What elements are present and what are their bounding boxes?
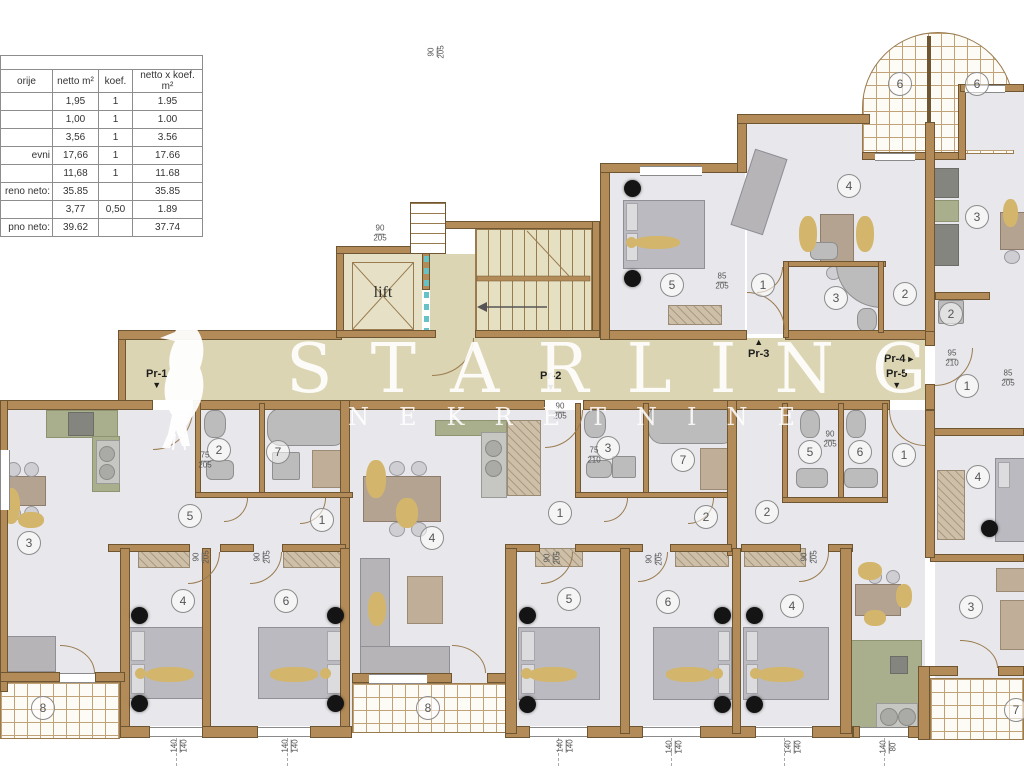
table-cell: netto m²	[53, 70, 99, 93]
wall	[840, 548, 852, 734]
balcony-bottom-left	[0, 682, 120, 739]
dimension-value: 205	[203, 550, 212, 563]
table-cell	[1, 111, 53, 129]
window	[640, 166, 702, 176]
stove-burner	[99, 446, 115, 462]
wall	[930, 428, 1024, 436]
wall	[930, 554, 1024, 562]
person-figure	[858, 562, 882, 580]
dimension-value: 205	[373, 235, 386, 244]
wall	[998, 666, 1024, 676]
person-figure	[1003, 199, 1018, 227]
wall	[195, 492, 353, 498]
lamp-dot	[981, 520, 998, 537]
room-number-badge: 2	[939, 302, 963, 326]
room-number-badge: 4	[966, 465, 990, 489]
table-cell: 1.89	[133, 201, 203, 219]
dimension-label: 85205	[1001, 370, 1014, 389]
kitchen-sink	[68, 412, 94, 436]
wall	[259, 403, 265, 498]
area-table: orijenetto m²koef.netto x koef. m²1,9511…	[0, 55, 203, 237]
dimension-value: 140	[292, 739, 301, 752]
wall	[575, 544, 643, 552]
lamp-dot	[131, 695, 148, 712]
table-cell: 1	[99, 165, 133, 183]
watermark-subtitle: NEKRETNINE	[348, 403, 825, 431]
room-number-badge: 5	[660, 273, 684, 297]
lamp-dot	[519, 696, 536, 713]
dimension-value: 205	[1001, 380, 1014, 389]
table-cell: 3,56	[53, 129, 99, 147]
dimension-label: 140140	[666, 740, 685, 753]
lamp-dot	[624, 270, 641, 287]
wall	[732, 548, 741, 734]
table-cell: reno neto:	[1, 183, 53, 201]
chair	[389, 461, 405, 476]
person-figure-head	[135, 668, 146, 679]
chair	[411, 461, 427, 476]
table-row: pno neto:39.6237.74	[1, 219, 203, 237]
table-cell: 1,00	[53, 111, 99, 129]
room-number-badge: 1	[548, 501, 572, 525]
stove-burner	[898, 708, 916, 726]
table-cell: 1.00	[133, 111, 203, 129]
toilet	[857, 308, 877, 332]
person-figure	[366, 460, 386, 498]
window	[150, 727, 202, 737]
room-number-badge: 3	[959, 595, 983, 619]
wall	[918, 666, 930, 740]
person-figure	[18, 512, 44, 528]
room-number-badge: 3	[17, 531, 41, 555]
room-number-badge: 1	[892, 443, 916, 467]
staircase-detail	[475, 229, 592, 332]
person-figure	[799, 216, 817, 252]
wardrobe	[668, 305, 722, 325]
wall	[958, 84, 966, 160]
table-row: evni17,66117.66	[1, 147, 203, 165]
person-figure	[856, 216, 874, 252]
room-number-badge: 2	[694, 505, 718, 529]
table-cell	[1, 129, 53, 147]
room-number-badge: 6	[888, 72, 912, 96]
wall	[587, 726, 643, 738]
lift-label: lift	[352, 284, 414, 302]
wall	[670, 544, 732, 552]
wall	[600, 163, 610, 340]
room-number-badge: 7	[266, 440, 290, 464]
window	[258, 727, 310, 737]
table-cell	[99, 219, 133, 237]
table-cell: 35.85	[53, 183, 99, 201]
table-cell	[1, 201, 53, 219]
table-cell: 1.95	[133, 93, 203, 111]
room-number-badge: 7	[1004, 698, 1024, 722]
floor-right-strip-patch	[966, 92, 1024, 150]
dimension-label: 90205	[373, 225, 386, 244]
dimension-label: 140140	[171, 739, 190, 752]
table-cell: pno neto:	[1, 219, 53, 237]
table-cell: 11,68	[53, 165, 99, 183]
table-cell: 35.85	[133, 183, 203, 201]
table-cell: 1	[99, 111, 133, 129]
wall	[925, 410, 935, 558]
person-figure	[396, 498, 418, 528]
pillow	[626, 203, 638, 231]
dimension-label: 140140	[785, 740, 804, 753]
room-number-badge: 4	[837, 174, 861, 198]
dimension-value: 205	[823, 441, 836, 450]
wall	[0, 672, 60, 682]
wall	[0, 400, 8, 692]
table-cell: 1	[99, 147, 133, 165]
lamp-dot	[327, 695, 344, 712]
dimension-label: 85205	[715, 273, 728, 292]
stove-burner	[99, 464, 115, 480]
dimension-value: 205	[264, 550, 273, 563]
room-number-badge: 6	[965, 72, 989, 96]
person-figure	[146, 667, 194, 682]
table-row: 1,0011.00	[1, 111, 203, 129]
person-figure	[896, 584, 912, 608]
table-cell: 1	[99, 93, 133, 111]
table-cell	[1, 56, 203, 70]
dimension-value: 205	[811, 550, 820, 563]
dimension-label: 90205	[646, 552, 665, 565]
room-number-badge: 2	[893, 282, 917, 306]
watermark-brand: STARLING	[286, 330, 964, 409]
chair	[24, 462, 39, 477]
room-number-badge: 1	[751, 273, 775, 297]
dimension-value: 205	[198, 462, 211, 471]
sink	[844, 468, 878, 488]
kitchen-counter	[933, 200, 959, 222]
sofa	[996, 568, 1024, 592]
table-cell: 39.62	[53, 219, 99, 237]
wall	[336, 246, 344, 338]
wall	[282, 544, 346, 552]
lamp-dot	[746, 607, 763, 624]
wall	[0, 400, 153, 410]
table-cell: 11.68	[133, 165, 203, 183]
wall	[737, 114, 870, 124]
person-figure-head	[320, 668, 331, 679]
coffee-table	[407, 576, 443, 624]
person-figure	[864, 610, 886, 626]
wall	[310, 726, 352, 738]
starling-bird-icon	[142, 322, 234, 452]
table-cell: 17.66	[133, 147, 203, 165]
person-figure	[758, 667, 804, 682]
wall	[120, 726, 150, 738]
window	[0, 450, 10, 510]
dimension-label: 90205	[544, 551, 563, 564]
wall	[118, 330, 126, 410]
window	[530, 727, 587, 737]
wall	[741, 544, 801, 552]
table-cell: 0,50	[99, 201, 133, 219]
lamp-dot	[131, 607, 148, 624]
chair	[886, 570, 900, 584]
person-figure	[368, 592, 386, 626]
room-number-badge: 3	[965, 205, 989, 229]
room-number-badge: 7	[671, 448, 695, 472]
table-row: 11,68111.68	[1, 165, 203, 183]
table-row: 3,5613.56	[1, 129, 203, 147]
dimension-label: 140140	[282, 739, 301, 752]
dimension-label: 90205	[823, 431, 836, 450]
lamp-dot	[327, 607, 344, 624]
wall	[838, 403, 844, 503]
window	[643, 727, 700, 737]
stove-burner	[485, 440, 502, 457]
stove-burner	[880, 708, 898, 726]
table-cell: 1	[99, 129, 133, 147]
wall	[120, 548, 130, 734]
room-number-badge: 5	[557, 587, 581, 611]
wall	[95, 672, 125, 682]
person-figure	[529, 667, 577, 682]
window	[756, 727, 812, 737]
room-number-badge: 8	[31, 696, 55, 720]
dimension-value: 205	[554, 551, 563, 564]
dimension-value: 140	[567, 739, 576, 752]
room-number-badge: 4	[780, 594, 804, 618]
room-number-badge: 2	[755, 500, 779, 524]
table-cell: 1,95	[53, 93, 99, 111]
sofa	[0, 636, 56, 672]
pillow	[998, 462, 1010, 488]
dimension-label: 75210	[587, 447, 600, 466]
lamp-dot	[519, 607, 536, 624]
dimension-label: 14080	[880, 740, 899, 753]
floor-plan: lift	[0, 0, 1024, 768]
room-number-badge: 6	[848, 440, 872, 464]
wall	[430, 221, 600, 229]
dimension-value: 205	[715, 283, 728, 292]
stair-vestibule-floor	[430, 254, 475, 338]
wall	[202, 726, 258, 738]
wall	[935, 292, 990, 300]
wall	[782, 497, 888, 503]
person-figure	[270, 667, 318, 682]
chair	[1004, 250, 1020, 264]
dimension-label: 90205	[428, 45, 447, 58]
lamp-dot	[714, 607, 731, 624]
wall	[925, 122, 935, 332]
dimension-value: 80	[890, 743, 899, 752]
dimension-value: 140	[676, 740, 685, 753]
room-number-badge: 6	[656, 590, 680, 614]
pillow	[131, 631, 145, 661]
dimension-label: 90205	[801, 550, 820, 563]
dimension-label: 90205	[254, 550, 273, 563]
table-row: 3,770,501.89	[1, 201, 203, 219]
room-number-badge: 4	[420, 526, 444, 550]
table-cell: 37.74	[133, 219, 203, 237]
table-cell	[1, 93, 53, 111]
dimension-value: 205	[656, 552, 665, 565]
room-number-badge: 8	[416, 696, 440, 720]
dimension-label: 90205	[193, 550, 212, 563]
room-number-badge: 3	[824, 286, 848, 310]
room-number-badge: 5	[798, 440, 822, 464]
kitchen-module	[933, 168, 959, 198]
person-figure	[634, 236, 680, 249]
person-figure-head	[712, 668, 723, 679]
kitchen-module	[933, 224, 959, 266]
table-cell: 3,77	[53, 201, 99, 219]
person-figure-head	[750, 668, 761, 679]
wall	[878, 261, 884, 333]
toilet	[846, 410, 866, 438]
wall	[700, 726, 756, 738]
sofa	[360, 646, 450, 674]
wall	[853, 726, 860, 738]
room-number-badge: 6	[274, 589, 298, 613]
pillow	[327, 631, 341, 661]
dimension-value: 210	[587, 457, 600, 466]
room-number-badge: 1	[310, 508, 334, 532]
room-number-badge: 5	[178, 504, 202, 528]
lamp-dot	[746, 696, 763, 713]
wall	[592, 221, 600, 338]
window	[369, 674, 427, 684]
wall	[882, 403, 888, 503]
person-figure-head	[626, 237, 637, 248]
table-cell: 3.56	[133, 129, 203, 147]
sink	[796, 468, 828, 488]
pillow	[746, 631, 758, 661]
table-cell: orije	[1, 70, 53, 93]
wall	[505, 548, 517, 734]
fridge	[507, 420, 541, 496]
sofa	[1000, 600, 1024, 650]
wall	[220, 544, 254, 552]
person-figure-head	[521, 668, 532, 679]
dimension-label: 140140	[557, 739, 576, 752]
person-figure	[666, 667, 712, 682]
table-cell: koef.	[99, 70, 133, 93]
table-header-row: orijenetto m²koef.netto x koef. m²	[1, 70, 203, 93]
table-cell	[1, 165, 53, 183]
lamp-dot	[624, 180, 641, 197]
dimension-label: 75205	[198, 452, 211, 471]
table-cell	[99, 183, 133, 201]
window	[60, 673, 95, 683]
table-cell: evni	[1, 147, 53, 165]
washing-machine	[612, 456, 636, 478]
window	[875, 153, 915, 161]
table-row: reno neto:35.8535.85	[1, 183, 203, 201]
kitchen-sink	[890, 656, 908, 674]
dimension-value: 140	[795, 740, 804, 753]
stair-upper-steps	[410, 202, 446, 254]
pillow	[521, 631, 535, 661]
lift-door-dashes	[424, 256, 429, 330]
window	[860, 727, 908, 737]
dimension-value: 140	[181, 739, 190, 752]
stove-burner	[485, 460, 502, 477]
wall	[783, 261, 886, 267]
wardrobe	[937, 470, 965, 540]
lamp-dot	[714, 696, 731, 713]
table-cell: netto x koef. m²	[133, 70, 203, 93]
table-cell: 17,66	[53, 147, 99, 165]
room-number-badge: 4	[171, 589, 195, 613]
dimension-value: 205	[438, 45, 447, 58]
wall	[620, 548, 630, 734]
pillow	[718, 631, 730, 661]
table-row: 1,9511.95	[1, 93, 203, 111]
